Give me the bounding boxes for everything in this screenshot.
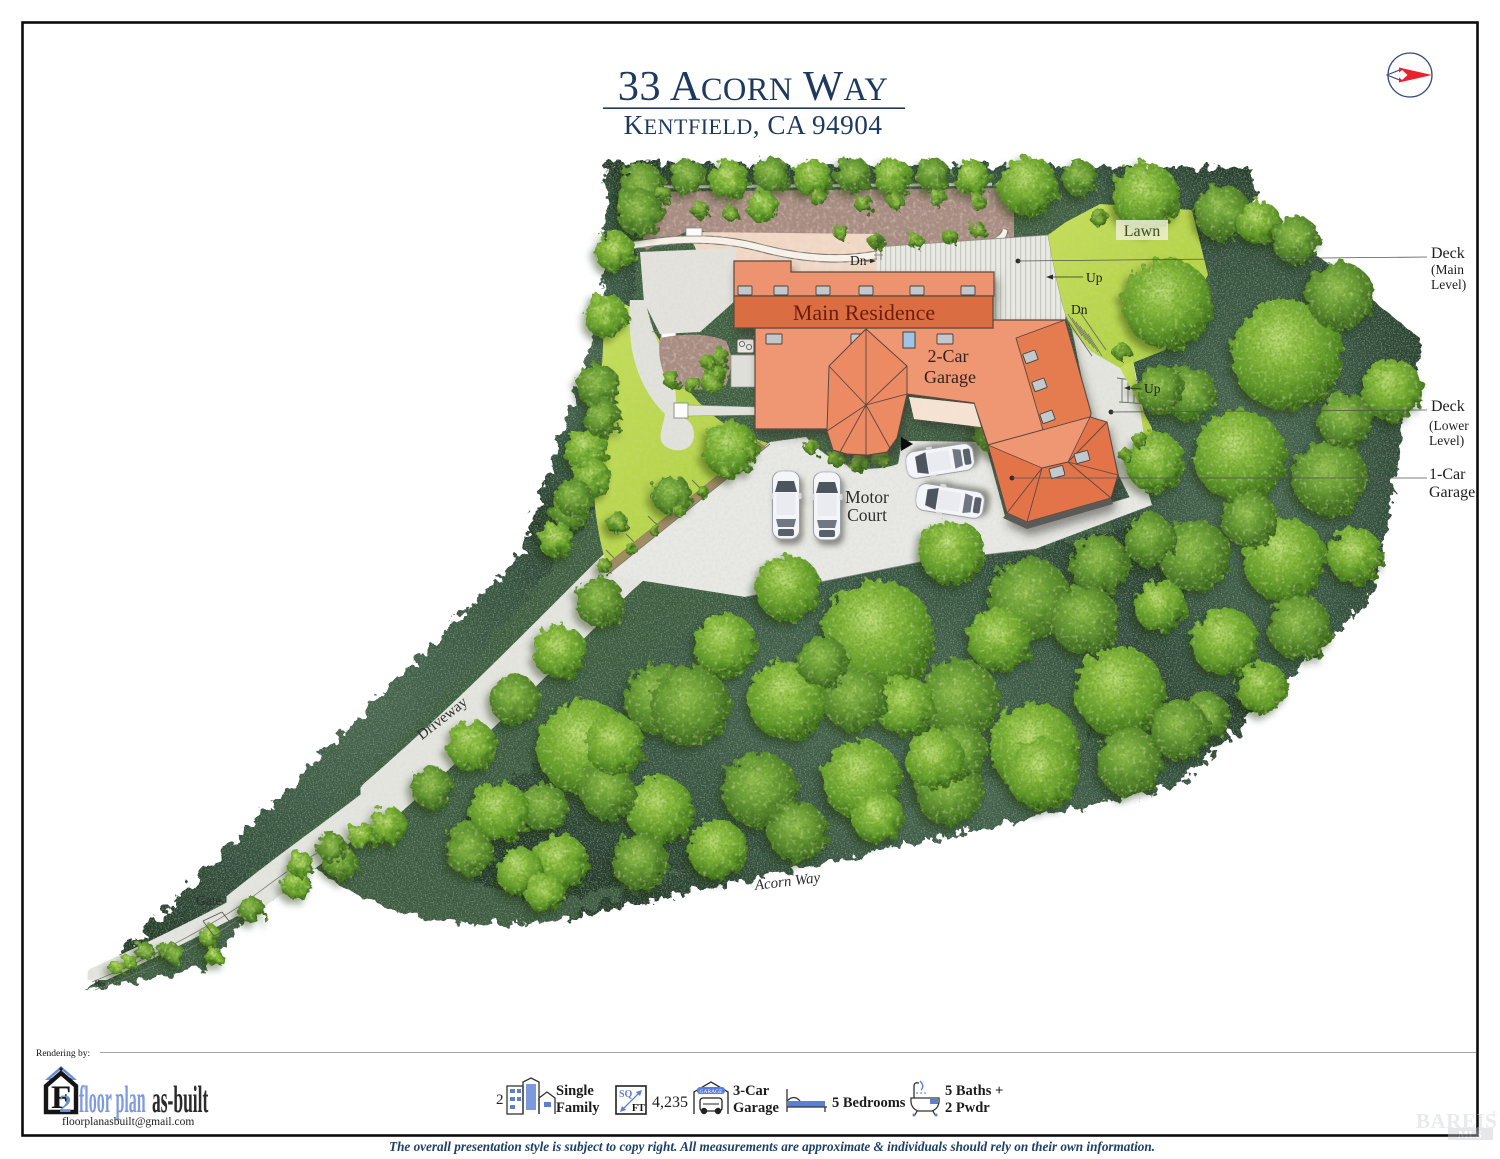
svg-text:Dn: Dn [1071, 302, 1088, 317]
svg-text:The overall presentation style: The overall presentation style is subjec… [389, 1139, 1155, 1154]
svg-text:Level): Level) [1431, 277, 1466, 292]
svg-text:3-Car: 3-Car [733, 1083, 770, 1099]
svg-text:as-built: as-built [152, 1080, 208, 1121]
svg-text:4,235: 4,235 [652, 1094, 688, 1111]
svg-text:2: 2 [496, 1092, 504, 1108]
svg-text:5 Baths +: 5 Baths + [945, 1083, 1003, 1099]
svg-text:Dn: Dn [850, 253, 867, 268]
svg-text:Level): Level) [1429, 433, 1464, 448]
svg-text:Main Residence: Main Residence [793, 300, 935, 325]
svg-text:2 Pwdr: 2 Pwdr [945, 1100, 990, 1116]
svg-text:KENTFIELD, CA 94904: KENTFIELD, CA 94904 [624, 110, 883, 140]
svg-text:floor plan: floor plan [79, 1079, 146, 1121]
svg-text:Up: Up [1144, 381, 1161, 396]
svg-text:5 Bedrooms: 5 Bedrooms [832, 1095, 906, 1111]
svg-text:®: ® [1491, 1109, 1497, 1118]
svg-text:Gate: Gate [196, 893, 221, 908]
svg-text:Motor: Motor [845, 487, 889, 507]
svg-text:Deck: Deck [1431, 398, 1465, 415]
svg-text:Rendering by:: Rendering by: [36, 1049, 90, 1059]
svg-text:MLS: MLS [1458, 1129, 1482, 1141]
svg-text:SQ: SQ [619, 1089, 633, 1100]
svg-text:floorplanasbuilt@gmail.com: floorplanasbuilt@gmail.com [62, 1116, 194, 1128]
svg-text:Family: Family [556, 1100, 600, 1116]
svg-text:Lawn: Lawn [1124, 223, 1160, 240]
svg-text:Garage: Garage [1429, 484, 1475, 501]
svg-text:Garage: Garage [924, 367, 976, 387]
svg-text:Up: Up [1086, 270, 1103, 285]
svg-text:1-Car: 1-Car [1429, 466, 1466, 483]
svg-text:Single: Single [556, 1083, 594, 1099]
svg-text:Court: Court [847, 505, 887, 525]
svg-text:2: 2 [59, 1091, 72, 1118]
svg-text:(Lower: (Lower [1429, 418, 1469, 433]
svg-text:Deck: Deck [1431, 245, 1465, 262]
svg-text:GARAGE: GARAGE [700, 1089, 724, 1095]
svg-text:2-Car: 2-Car [928, 346, 969, 366]
svg-text:(Main: (Main [1431, 262, 1464, 277]
svg-text:Garage: Garage [733, 1100, 779, 1116]
svg-text:FT: FT [632, 1103, 645, 1114]
